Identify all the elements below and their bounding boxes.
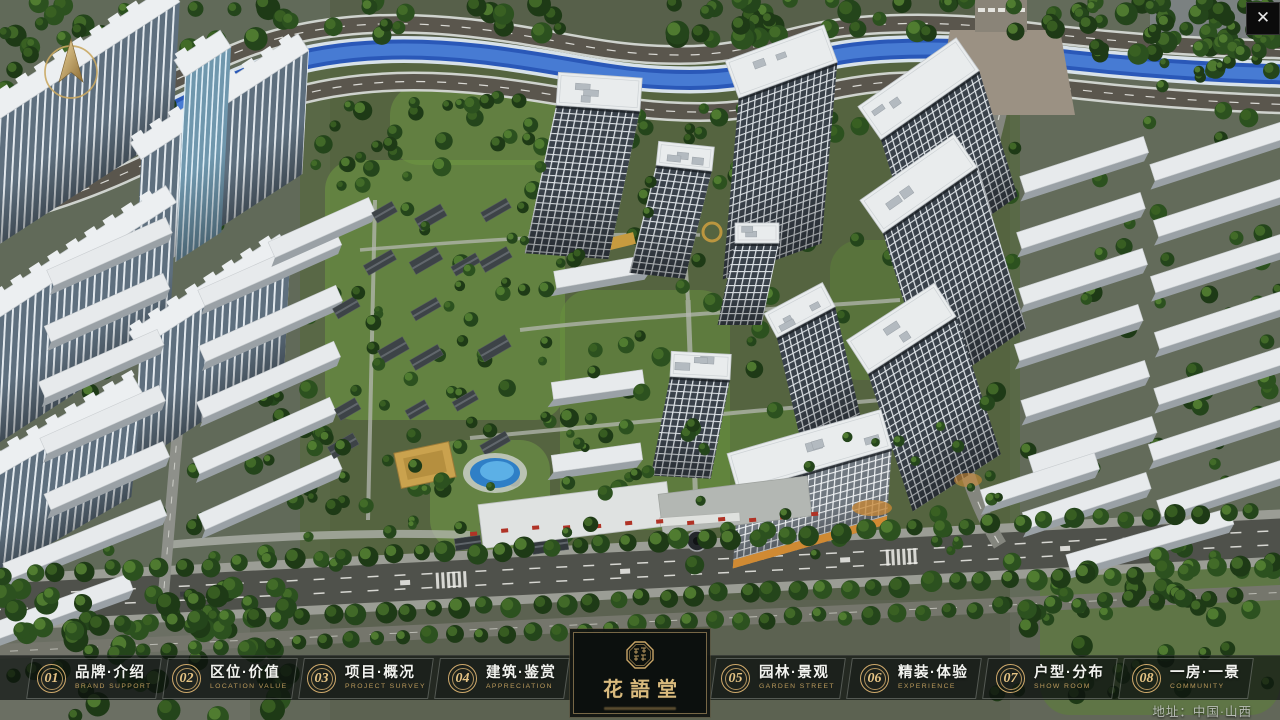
nav-item-label: 项目·概况 [345,666,415,681]
nav-item-number-badge: 01 [37,664,66,693]
nav-item-05[interactable]: 05 园林·景观 GARDEN STREET [710,658,846,699]
nav-item-label: 一房·一景 [1170,666,1240,681]
nav-item-sublabel: COMMUNITY [1170,683,1225,690]
nav-item-03[interactable]: 03 项目·概况 PROJECT SURVEY [298,658,434,699]
nav-item-sublabel: LOCATION VALUE [210,683,288,690]
nav-item-02[interactable]: 02 区位·价值 LOCATION VALUE [162,658,298,699]
nav-item-number-badge: 05 [721,664,750,693]
nav-group-left: 01 品牌·介绍 BRAND SUPPORT 02 区位·价值 LOCATION… [26,658,570,699]
logo-title: 花語堂 [596,673,684,702]
nav-item-06[interactable]: 06 精装·体验 EXPERIENCE [846,658,982,699]
nav-item-number-badge: 03 [307,664,336,693]
nav-item-sublabel: SHOW ROOM [1034,683,1091,690]
nav-item-label: 品牌·介绍 [75,666,145,681]
nav-item-label: 户型·分布 [1034,666,1104,681]
logo-panel[interactable]: 花語堂 [573,632,707,714]
nav-item-sublabel: PROJECT SURVEY [345,683,426,690]
nav-item-number-badge: 06 [860,664,889,693]
nav-item-number-badge: 07 [996,664,1025,693]
nav-item-sublabel: BRAND SUPPORT [75,683,152,690]
nav-item-number-badge: 08 [1132,664,1161,693]
logo-subtitle [604,707,676,710]
nav-item-number-badge: 04 [448,664,477,693]
app-window: ✕ 01 品牌·介绍 BRAND SUPPORT 02 区位·价值 LOCATI… [0,0,1280,720]
logo-seal-icon [625,640,655,670]
nav-item-07[interactable]: 07 户型·分布 SHOW ROOM [982,658,1118,699]
project-address: 地址：中国·山西 [1152,701,1252,720]
nav-item-number-badge: 02 [172,664,201,693]
nav-item-04[interactable]: 04 建筑·鉴赏 APPRECIATION [434,658,570,699]
nav-item-label: 精装·体验 [898,666,968,681]
nav-item-label: 园林·景观 [759,666,829,681]
nav-item-sublabel: APPRECIATION [486,683,553,690]
nav-group-right: 05 园林·景观 GARDEN STREET 06 精装·体验 EXPERIEN… [710,658,1254,699]
nav-item-label: 建筑·鉴赏 [486,666,556,681]
close-button[interactable]: ✕ [1246,2,1280,35]
aerial-render-view[interactable] [0,0,1280,720]
nav-item-label: 区位·价值 [210,666,280,681]
nav-item-sublabel: GARDEN STREET [759,683,835,690]
nav-item-08[interactable]: 08 一房·一景 COMMUNITY [1118,658,1254,699]
nav-item-01[interactable]: 01 品牌·介绍 BRAND SUPPORT [26,658,162,699]
nav-item-sublabel: EXPERIENCE [898,683,956,690]
